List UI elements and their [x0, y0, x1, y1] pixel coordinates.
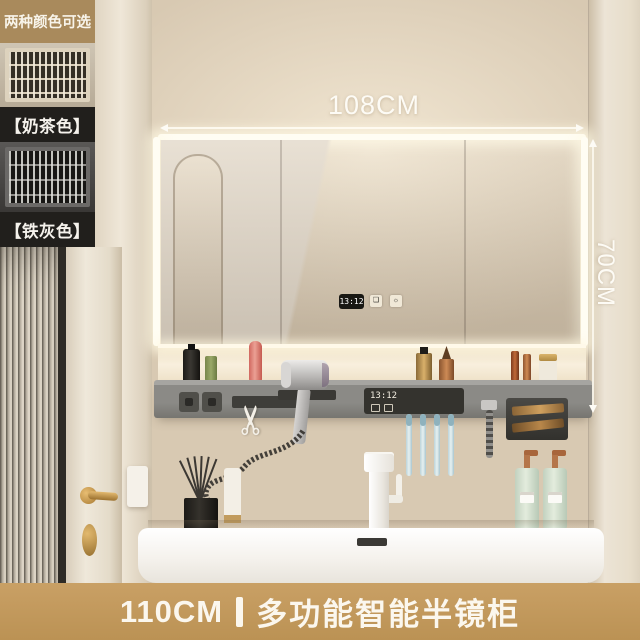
banner-divider — [236, 597, 243, 627]
thumbnail-milk-tea-color — [0, 43, 95, 107]
backlit-alcove — [158, 345, 586, 381]
razor — [481, 400, 497, 410]
perfume-cap — [420, 347, 428, 354]
light-icon: ☼ — [390, 295, 402, 307]
dispenser-pump-stem — [552, 455, 558, 468]
hair-dryer-rear — [322, 363, 329, 387]
razor-handle — [486, 410, 493, 458]
panel-button-icon — [371, 404, 380, 412]
defog-icon: ❏ — [370, 295, 382, 307]
panel-button-icon — [384, 404, 393, 412]
faucet-head — [364, 452, 394, 472]
dispenser-pump-stem — [524, 455, 530, 468]
color-option-label-iron-gray: 【铁灰色】 — [0, 212, 95, 247]
black-spray-bottle — [183, 349, 200, 381]
toothbrush-head — [434, 414, 440, 426]
product-title-banner: 110CM 多功能智能半镜柜 — [0, 583, 640, 640]
mirror-shading — [161, 140, 580, 345]
dropper-bottle — [439, 359, 454, 381]
height-dimension-label: 70CM — [591, 239, 619, 301]
faucet — [369, 468, 389, 530]
gold-door-lock — [82, 524, 97, 556]
arrow-right-icon — [576, 124, 584, 132]
fluted-glass-partition — [0, 247, 58, 583]
dispenser-label — [520, 492, 534, 503]
mini-cabinet — [5, 147, 90, 207]
thumbnail-iron-gray-color — [0, 142, 95, 212]
mini-cabinet-shelves — [9, 52, 86, 98]
arrow-down-icon — [589, 405, 597, 413]
dispenser-label — [548, 492, 562, 503]
product-image: 13:12 ❏ ☼ ✂ 13:12 — [0, 0, 640, 640]
gold-perfume-bottle — [416, 353, 432, 381]
black-spray-bottle-cap — [188, 344, 195, 350]
lipstick — [511, 351, 519, 381]
shelf-clock-display: 13:12 — [370, 391, 400, 401]
hair-dryer-face — [281, 362, 291, 388]
socket-hole — [185, 398, 193, 406]
pink-cosmetic-tube — [249, 341, 262, 381]
socket-hole — [208, 398, 216, 406]
color-options-header: 两种颜色可选 — [0, 0, 95, 43]
toothbrush-head — [406, 414, 412, 426]
banner-size-label: 110CM — [120, 594, 223, 630]
cream-jar — [539, 360, 557, 381]
toothbrush — [406, 414, 412, 476]
mini-cabinet — [5, 48, 90, 102]
banner-title: 多功能智能半镜柜 — [256, 589, 520, 634]
green-bottle — [205, 356, 217, 381]
width-dimension-label: 108CM — [160, 90, 588, 121]
power-outlet — [179, 392, 199, 412]
light-switch — [127, 466, 148, 507]
toothbrush-head — [420, 414, 426, 426]
width-dimension-line — [167, 127, 577, 129]
toothbrush-head — [448, 414, 454, 426]
lipstick — [523, 354, 531, 381]
color-option-label-milk-tea: 【奶茶色】 — [0, 107, 95, 142]
door-dark-edge — [58, 247, 66, 583]
arrow-left-icon — [160, 124, 168, 132]
mirror-clock-display: 13:12 — [339, 294, 364, 309]
basin-overflow-slot — [357, 538, 387, 546]
toothbrush — [434, 414, 440, 476]
mirror-led-strip-right — [581, 137, 588, 346]
under-mirror-led — [158, 344, 586, 348]
toothbrush — [448, 414, 454, 476]
power-outlet — [202, 392, 222, 412]
mirror-led-strip-left — [153, 137, 160, 346]
mini-cabinet-shelves — [9, 151, 86, 203]
arrow-up-icon — [589, 139, 597, 147]
cream-jar-lid — [539, 354, 557, 361]
washbasin-counter — [138, 528, 604, 583]
toothbrush — [420, 414, 426, 476]
mirror-cabinet — [161, 140, 580, 345]
